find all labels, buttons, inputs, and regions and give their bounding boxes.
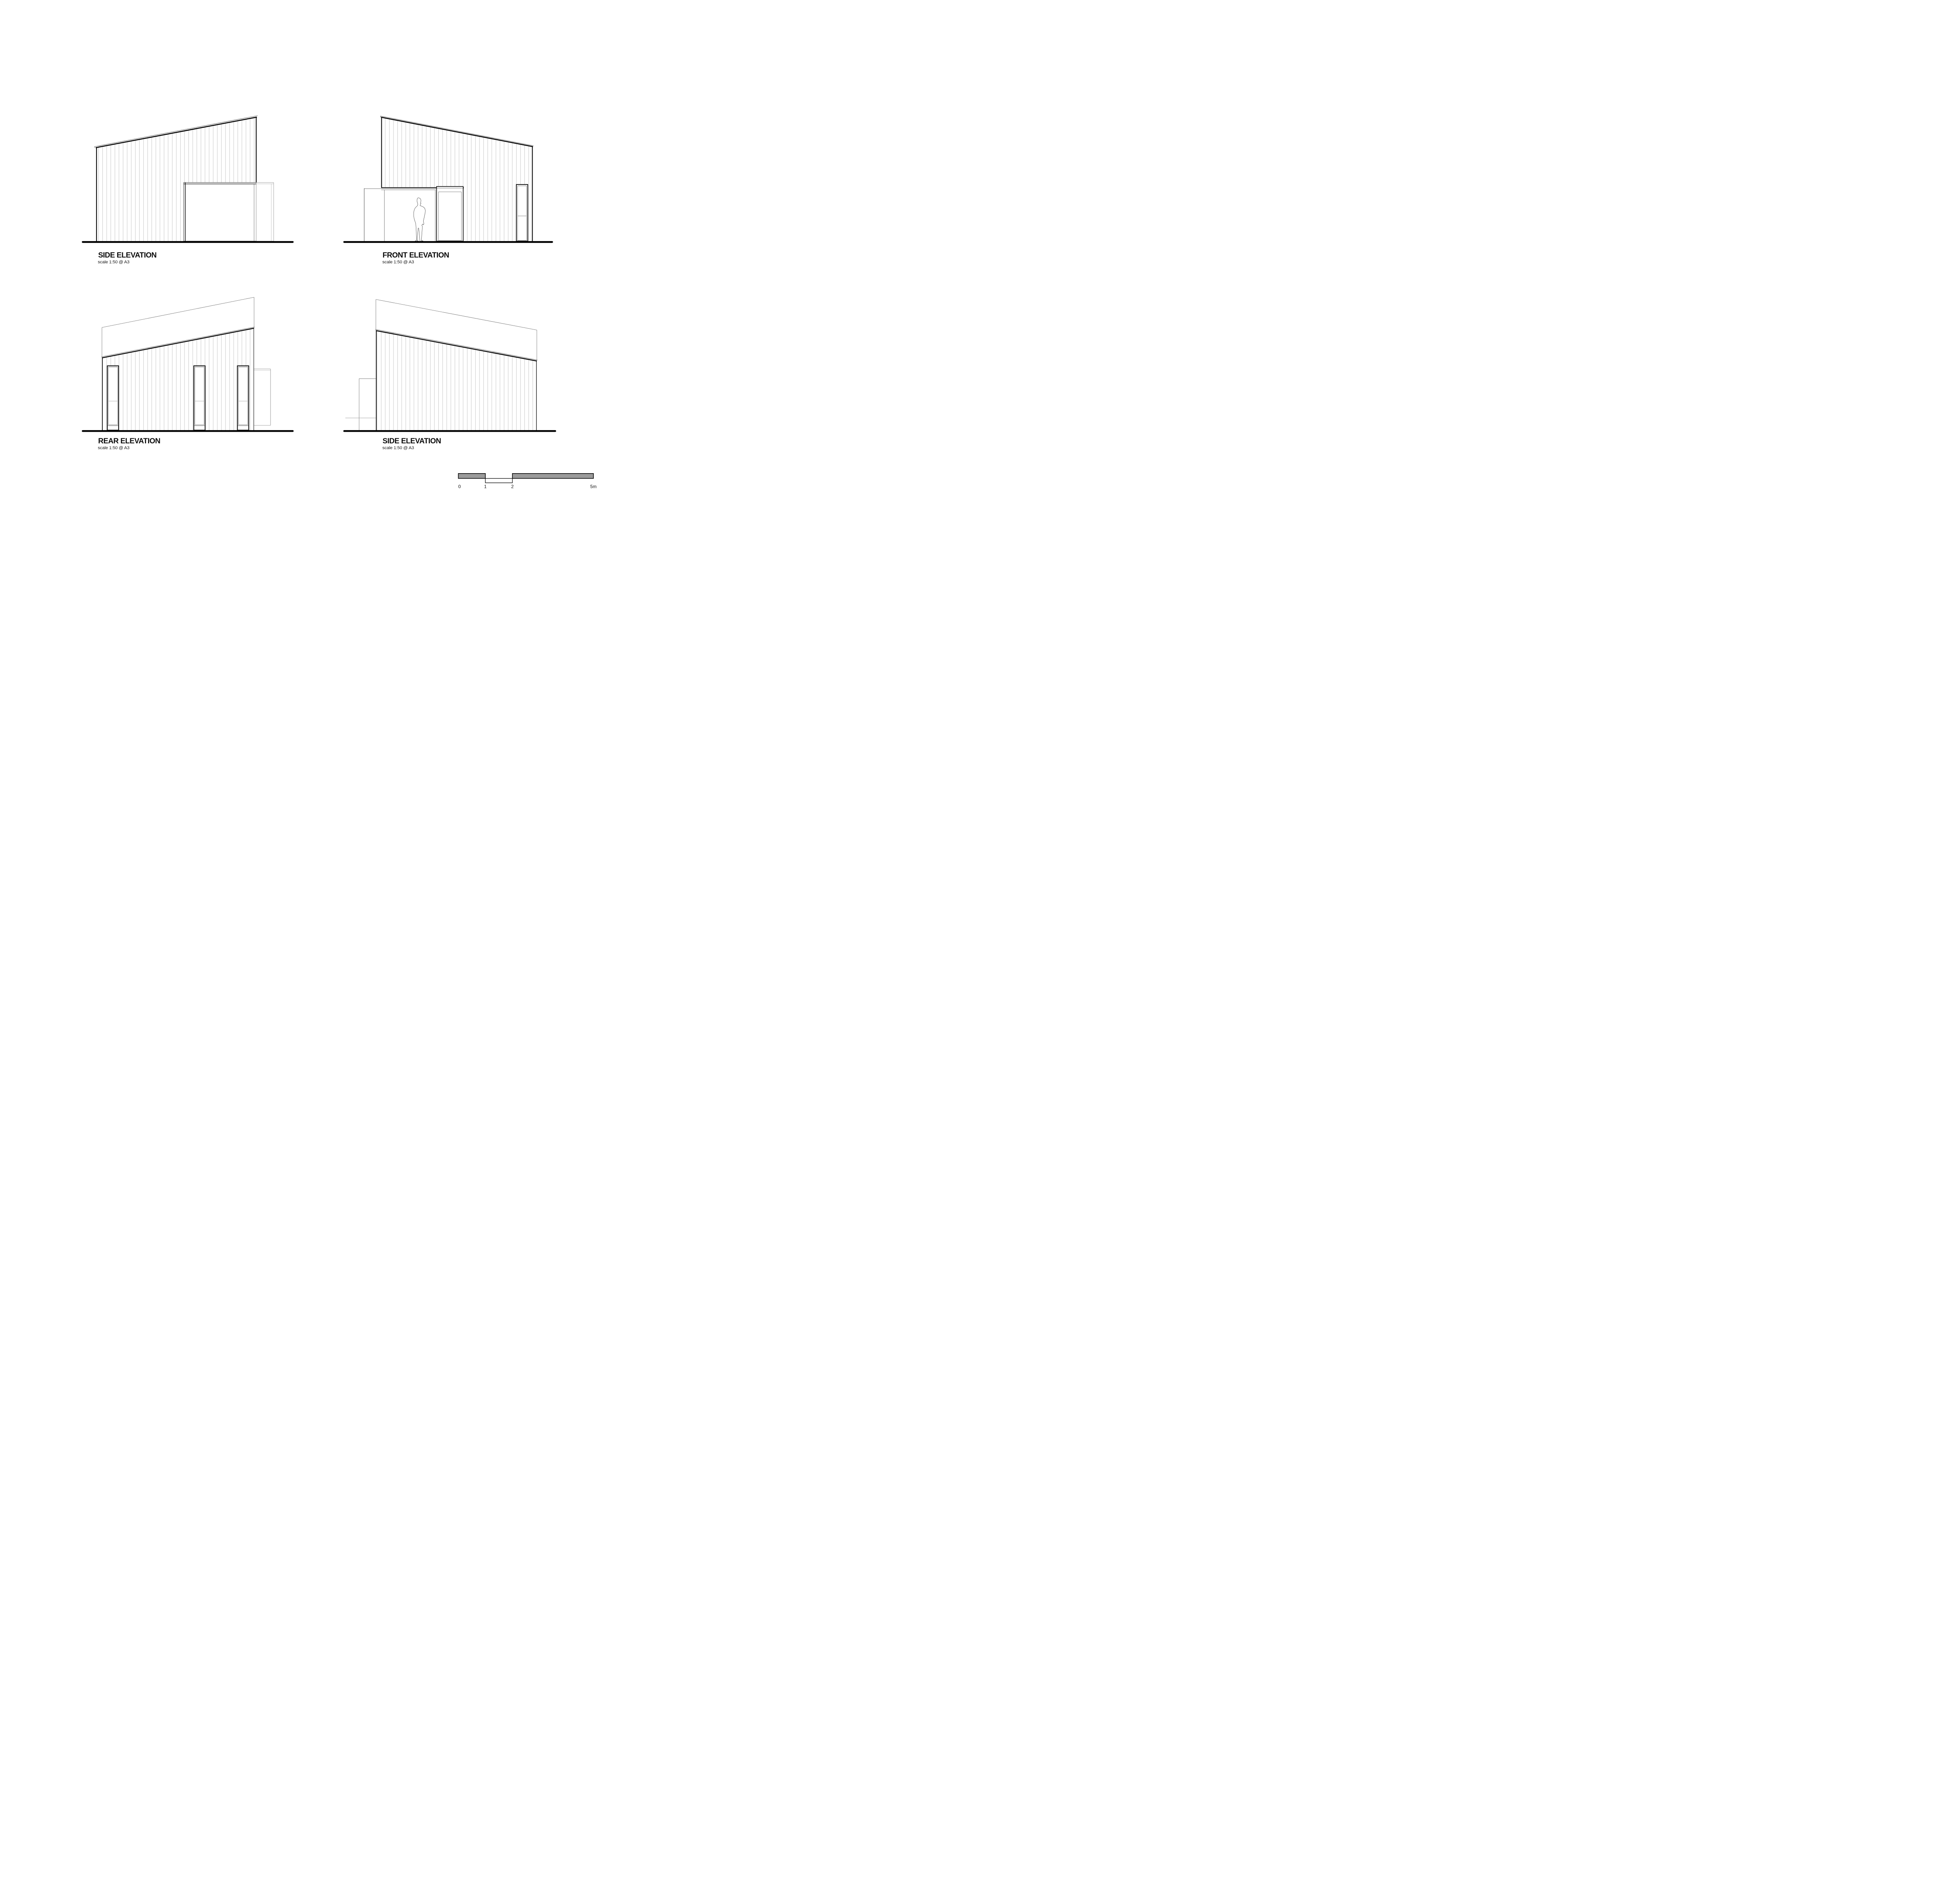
rear-elevation: REAR ELEVATION scale 1:50 @ A3	[83, 297, 293, 450]
side-elevation-2: SIDE ELEVATION scale 1:50 @ A3	[344, 300, 555, 450]
drawing-scale: scale 1:50 @ A3	[383, 446, 414, 450]
side-structure-outline	[254, 369, 271, 426]
scale-bar-segment-0-1	[459, 474, 486, 479]
drawing-title: REAR ELEVATION	[98, 437, 160, 445]
drawing-scale: scale 1:50 @ A3	[98, 446, 129, 450]
front-elevation: FRONT ELEVATION scale 1:50 @ A3	[344, 116, 552, 264]
tall-window	[516, 184, 528, 241]
rear-window-1	[107, 366, 119, 430]
scale-label-5m: 5m	[590, 484, 597, 489]
drawing-title: SIDE ELEVATION	[98, 252, 157, 260]
rear-window-2	[194, 366, 205, 430]
elevation-sheet: SIDE ELEVATION scale 1:50 @ A3	[0, 0, 608, 575]
scale-bar-segment-2-5	[512, 474, 593, 479]
side-return-panel	[256, 183, 274, 241]
scale-label-1: 1	[484, 484, 487, 489]
scale-bar: 0 1 2 5m	[458, 474, 597, 489]
drawing-scale: scale 1:50 @ A3	[98, 260, 129, 264]
rear-structure-outline	[345, 379, 376, 430]
rear-window-3	[238, 366, 249, 430]
scale-label-2: 2	[511, 484, 514, 489]
side-elevation-1: SIDE ELEVATION scale 1:50 @ A3	[83, 115, 293, 264]
scale-bar-segment-1-2	[485, 479, 512, 483]
drawing-title: SIDE ELEVATION	[383, 437, 441, 445]
scale-label-0: 0	[458, 484, 461, 489]
entrance-door	[436, 186, 463, 241]
drawing-title: FRONT ELEVATION	[383, 252, 449, 260]
drawing-scale: scale 1:50 @ A3	[383, 260, 414, 264]
garage-opening	[184, 183, 256, 241]
person-silhouette	[414, 198, 425, 241]
elevations-drawing: SIDE ELEVATION scale 1:50 @ A3	[0, 0, 608, 575]
